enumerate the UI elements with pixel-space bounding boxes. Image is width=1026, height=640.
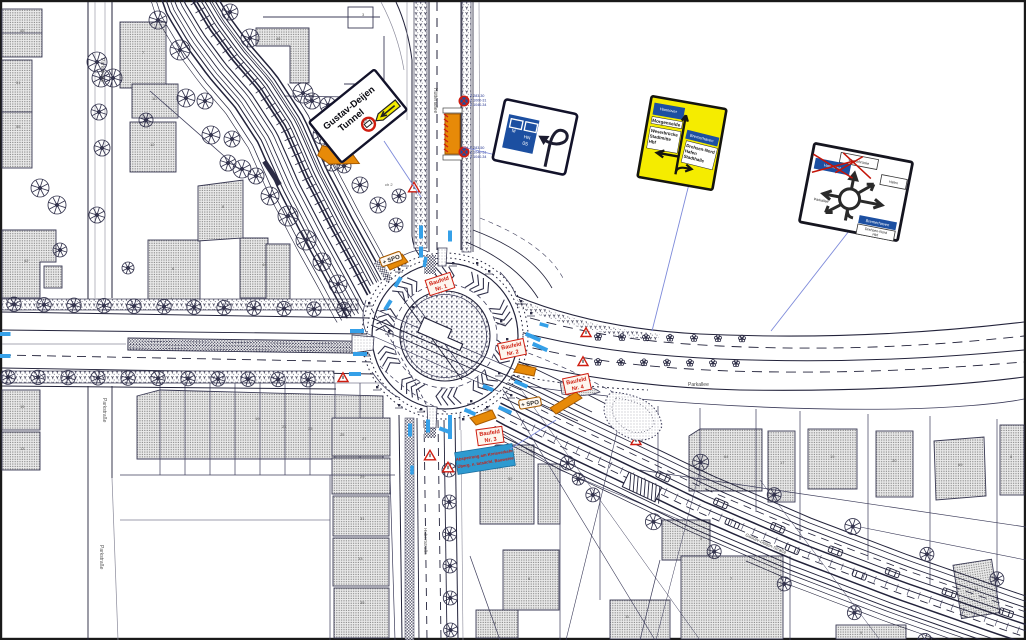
svg-text:Z 1040-31: Z 1040-31 [470, 151, 486, 155]
svg-text:45: 45 [20, 28, 25, 33]
svg-text:15: 15 [20, 404, 25, 409]
svg-text:Hüttenallee: Hüttenallee [432, 88, 438, 114]
svg-text:44: 44 [262, 262, 267, 267]
svg-text:31: 31 [360, 516, 365, 521]
svg-text:20: 20 [892, 458, 897, 463]
svg-text:13: 13 [20, 446, 25, 451]
svg-text:27: 27 [362, 436, 367, 441]
svg-text:ch 2: ch 2 [385, 182, 393, 187]
svg-text:Hubertstraße: Hubertstraße [423, 528, 428, 555]
svg-text:Parkstraße: Parkstraße [98, 545, 104, 570]
svg-text:25: 25 [340, 432, 345, 437]
svg-text:Parkallee: Parkallee [688, 382, 709, 388]
svg-text:19: 19 [255, 416, 260, 421]
svg-text:46: 46 [276, 36, 281, 41]
svg-text:21: 21 [282, 424, 287, 429]
svg-text:10: 10 [152, 96, 157, 101]
svg-text:64: 64 [724, 454, 729, 459]
svg-text:19: 19 [830, 454, 835, 459]
svg-text:17: 17 [780, 460, 785, 465]
svg-text:Z 1040-34: Z 1040-34 [470, 155, 486, 159]
svg-text:Parkstraße: Parkstraße [101, 398, 107, 423]
svg-text:42: 42 [24, 258, 29, 263]
svg-text:23: 23 [308, 426, 313, 431]
svg-text:Z 1040-34: Z 1040-34 [470, 103, 486, 107]
svg-text:69: 69 [958, 462, 963, 467]
svg-text:Z 283-30: Z 283-30 [470, 94, 484, 98]
svg-text:Z 1000-31: Z 1000-31 [470, 99, 486, 103]
svg-text:51: 51 [16, 80, 21, 85]
svg-text:12: 12 [150, 142, 155, 147]
svg-text:35: 35 [360, 600, 365, 605]
svg-text:55: 55 [16, 124, 21, 129]
svg-text:52: 52 [508, 476, 513, 481]
svg-text:29: 29 [360, 474, 365, 479]
svg-text:33: 33 [358, 556, 363, 561]
